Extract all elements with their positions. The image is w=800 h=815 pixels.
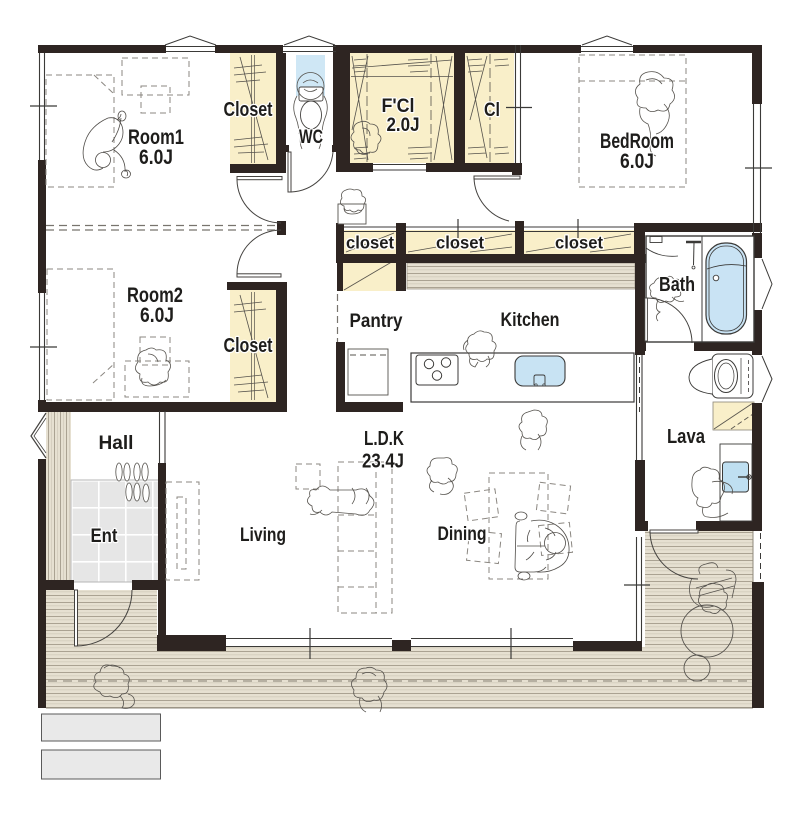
svg-text:L.D.K: L.D.K xyxy=(364,428,404,450)
svg-text:Hall: Hall xyxy=(99,433,134,454)
svg-text:6.0J: 6.0J xyxy=(620,150,654,173)
svg-text:closet: closet xyxy=(555,233,603,253)
svg-text:Kitchen: Kitchen xyxy=(501,310,560,331)
svg-text:Closet: Closet xyxy=(224,99,273,121)
svg-text:23.4J: 23.4J xyxy=(362,451,404,473)
svg-text:Pantry: Pantry xyxy=(350,311,403,332)
svg-text:Cl: Cl xyxy=(484,100,500,121)
svg-text:closet: closet xyxy=(346,233,394,253)
svg-text:Ent: Ent xyxy=(91,526,119,547)
svg-text:Dining: Dining xyxy=(438,524,487,545)
svg-text:F'Cl: F'Cl xyxy=(382,96,415,117)
svg-text:6.0J: 6.0J xyxy=(139,146,173,169)
svg-text:Bath: Bath xyxy=(659,274,695,296)
svg-text:2.0J: 2.0J xyxy=(387,115,420,136)
svg-text:Lava: Lava xyxy=(667,426,706,448)
svg-text:Living: Living xyxy=(240,525,286,546)
svg-text:closet: closet xyxy=(436,233,484,253)
svg-text:WC: WC xyxy=(299,127,323,148)
svg-text:Closet: Closet xyxy=(224,335,273,357)
svg-text:6.0J: 6.0J xyxy=(140,304,174,327)
